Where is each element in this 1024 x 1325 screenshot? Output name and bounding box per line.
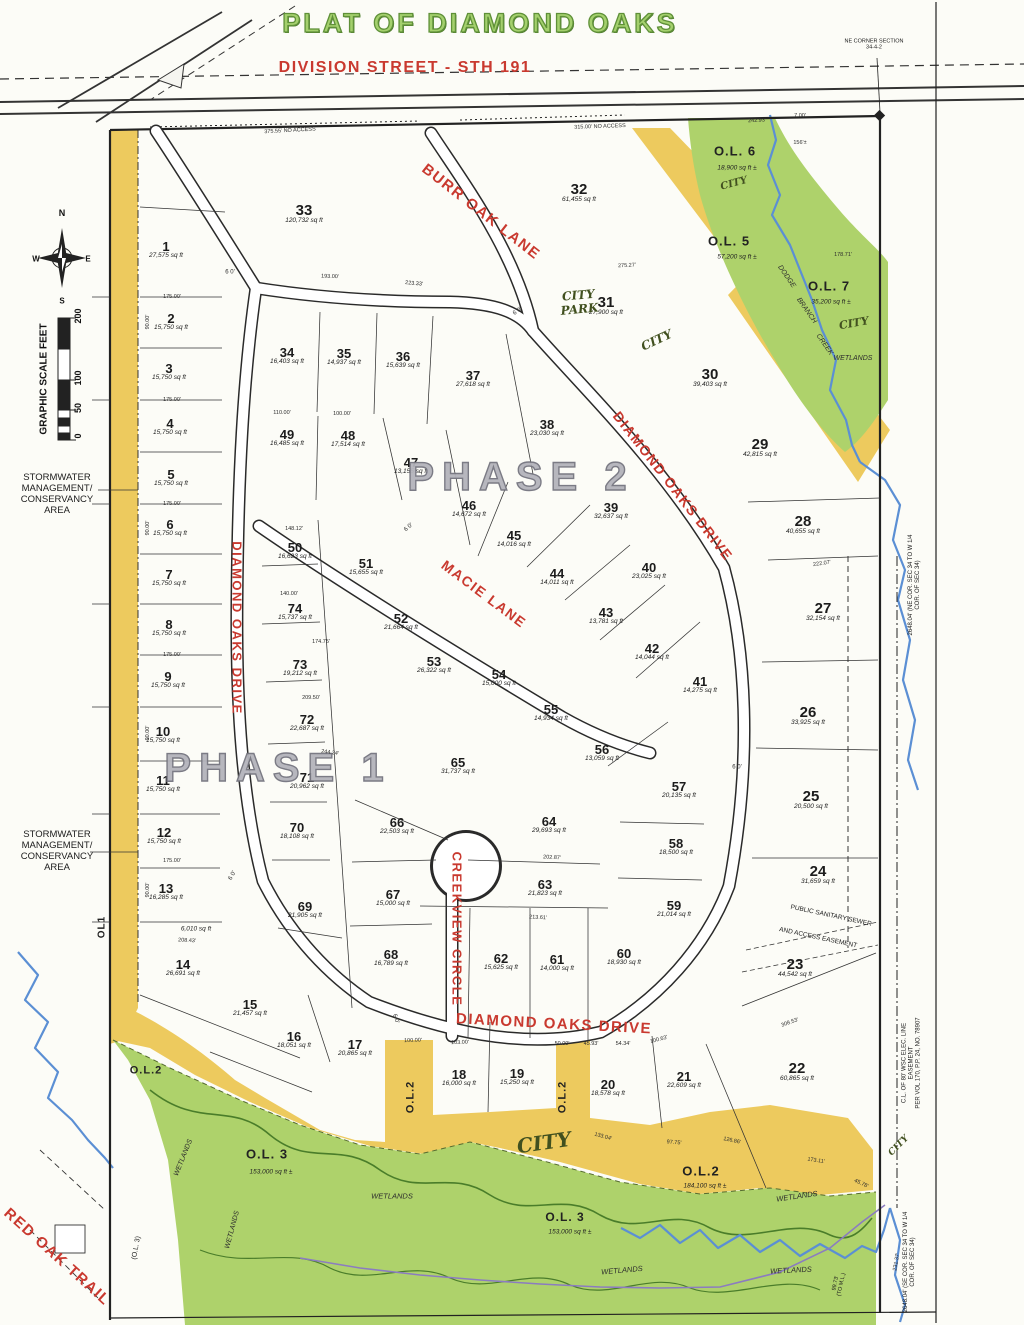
scale-label: 0 — [73, 433, 83, 438]
lot-number: 42 — [635, 642, 669, 655]
lot-area: 23,030 sq ft — [530, 431, 564, 438]
lot-area: 16,789 sq ft — [374, 961, 408, 968]
dimension-label: 6 0' — [225, 270, 235, 277]
lot-label-25: 2520,500 sq ft — [794, 789, 828, 811]
lot-label-32: 3261,455 sq ft — [562, 182, 596, 204]
dimension-label: 175.00' — [163, 397, 181, 403]
lot-area: 15,750 sq ft — [154, 325, 188, 332]
lot-label-60: 6018,930 sq ft — [607, 947, 641, 967]
lot-area: 15,750 sq ft — [154, 481, 188, 488]
lot-label-49: 4916,485 sq ft — [270, 428, 304, 448]
lot-area: 120,732 sq ft — [285, 218, 323, 225]
lot-area: 29,693 sq ft — [532, 828, 566, 835]
outlot-label: O.L.2 — [405, 1081, 418, 1114]
outlot-area-label: 184,100 sq ft ± — [684, 1182, 727, 1189]
lot-area: 14,011 sq ft — [540, 580, 574, 587]
lot-label-53: 5326,322 sq ft — [417, 655, 451, 675]
lot-number: 74 — [278, 602, 312, 615]
lot-area: 15,750 sq ft — [152, 375, 186, 382]
compass-letter: W — [32, 254, 40, 263]
lot-label-3: 315,750 sq ft — [152, 362, 186, 382]
dimension-label: 50.00' — [555, 1041, 570, 1047]
lot-label-36: 3615,639 sq ft — [386, 350, 420, 370]
dimension-label: 100.00' — [404, 1038, 422, 1045]
lot-label-40: 4023,025 sq ft — [632, 561, 666, 581]
lot-number: 68 — [374, 948, 408, 961]
lot-number: 26 — [791, 705, 825, 720]
lot-label-15: 1521,457 sq ft — [233, 998, 267, 1018]
lot-number: 23 — [778, 957, 812, 972]
lot-number: 43 — [589, 606, 623, 619]
wetland-label: WETLANDS — [601, 1265, 643, 1277]
lot-number: 45 — [497, 529, 531, 542]
scale-label: 50 — [73, 403, 83, 413]
lot-number: 21 — [667, 1070, 701, 1083]
lot-number: 25 — [794, 789, 828, 804]
lot-area: 22,503 sq ft — [380, 829, 414, 836]
lot-area: 21,823 sq ft — [528, 891, 562, 898]
dimension-label: 90.00' — [145, 883, 151, 898]
lot-area: 44,542 sq ft — [778, 972, 812, 979]
lot-area: 15,250 sq ft — [500, 1080, 534, 1087]
lot-number: 5 — [154, 468, 188, 481]
outlot-area-label: 153,000 sq ft ± — [549, 1228, 592, 1235]
lot-area: 18,500 sq ft — [659, 850, 693, 857]
dimension-label: 178.71' — [834, 252, 852, 258]
outlot-area-label: 6,010 sq ft — [181, 925, 211, 932]
lot-number: 60 — [607, 947, 641, 960]
handwritten-note: CITY — [515, 1128, 572, 1158]
lot-label-21: 2122,609 sq ft — [667, 1070, 701, 1090]
lot-label-6: 615,750 sq ft — [153, 518, 187, 538]
dimension-label: 90.00' — [145, 315, 151, 330]
lot-area: 21,905 sq ft — [288, 913, 322, 920]
lot-label-33: 33120,732 sq ft — [285, 203, 323, 225]
lot-area: 15,750 sq ft — [152, 631, 186, 638]
lot-label-39: 3932,637 sq ft — [594, 501, 628, 521]
lot-label-12: 1215,750 sq ft — [147, 826, 181, 846]
compass-letter: S — [59, 296, 64, 305]
lot-label-5: 515,750 sq ft — [154, 468, 188, 488]
map-note: 2648.04' (SE COR. SEC 34 TO W 1/4 COR. O… — [903, 1212, 917, 1313]
lot-label-64: 6429,693 sq ft — [532, 815, 566, 835]
dimension-label: 97.75' — [666, 1139, 681, 1147]
lot-area: 14,937 sq ft — [327, 360, 361, 367]
lot-number: 46 — [452, 499, 486, 512]
wetland-label: WETLANDS — [371, 1193, 413, 1202]
lot-label-48: 4817,514 sq ft — [331, 429, 365, 449]
dimension-label: 140.00' — [280, 591, 298, 597]
dimension-label: 375.55' NO ACCESS — [264, 127, 316, 136]
dimension-label: 103.00' — [451, 1040, 469, 1047]
outlot-area-label: 18,900 sq ft ± — [717, 164, 756, 171]
lot-number: 58 — [659, 837, 693, 850]
lot-area: 22,687 sq ft — [290, 726, 324, 733]
lot-number: 6 — [153, 518, 187, 531]
lot-label-20: 2018,578 sq ft — [591, 1078, 625, 1098]
lot-label-2: 215,750 sq ft — [154, 312, 188, 332]
lot-label-35: 3514,937 sq ft — [327, 347, 361, 367]
lot-label-23: 2344,542 sq ft — [778, 957, 812, 979]
lot-area: 21,664 sq ft — [384, 625, 418, 632]
dimension-label: 100.00' — [333, 411, 351, 417]
lot-area: 15,655 sq ft — [349, 570, 383, 577]
lot-area: 17,514 sq ft — [331, 442, 365, 449]
lot-number: 67 — [376, 888, 410, 901]
dimension-label: 45.78' — [853, 1178, 869, 1190]
map-note: PUBLIC SANITARY SEWER — [790, 904, 872, 929]
lot-area: 13,059 sq ft — [585, 756, 619, 763]
lot-number: 18 — [442, 1068, 476, 1081]
wetland-label: WETLANDS — [770, 1266, 812, 1277]
lot-label-22: 2260,865 sq ft — [780, 1061, 814, 1083]
lot-area: 27,575 sq ft — [149, 253, 183, 260]
dimension-label: 202.87' — [543, 854, 561, 861]
lot-label-8: 815,750 sq ft — [152, 618, 186, 638]
map-note: STORMWATER MANAGEMENT/ CONSERVANCY AREA — [21, 473, 94, 517]
lot-number: 65 — [441, 756, 475, 769]
lot-number: 12 — [147, 826, 181, 839]
lot-area: 32,637 sq ft — [594, 514, 628, 521]
dimension-label: 193.00' — [321, 274, 339, 281]
dimension-label: 45.93' — [584, 1041, 599, 1047]
lot-area: 18,930 sq ft — [607, 960, 641, 967]
lot-area: 15,639 sq ft — [386, 363, 420, 370]
lot-area: 61,455 sq ft — [562, 197, 596, 204]
wetland-label: WETLANDS — [173, 1138, 195, 1177]
lot-area: 14,044 sq ft — [635, 655, 669, 662]
lot-label-14: 1426,691 sq ft — [166, 958, 200, 978]
lot-area: 14,016 sq ft — [497, 542, 531, 549]
lot-label-38: 3823,030 sq ft — [530, 418, 564, 438]
dimension-label: 175.00' — [163, 294, 181, 300]
lot-number: 44 — [540, 567, 574, 580]
dimension-label: 6 0' — [732, 765, 742, 772]
lot-label-1: 127,575 sq ft — [149, 240, 183, 260]
lot-area: 14,275 sq ft — [683, 688, 717, 695]
lot-label-4: 415,750 sq ft — [153, 417, 187, 437]
dimension-label: 6 0' — [403, 522, 415, 533]
lot-area: 14,934 sq ft — [534, 716, 568, 723]
lot-area: 15,750 sq ft — [153, 531, 187, 538]
lot-area: 15,737 sq ft — [278, 615, 312, 622]
map-note: NE CORNER SECTION 34-4-2 — [845, 39, 904, 52]
handwritten-note: CITY — [639, 328, 674, 354]
lot-label-41: 4114,275 sq ft — [683, 675, 717, 695]
lot-number: 55 — [534, 703, 568, 716]
lot-number: 9 — [151, 670, 185, 683]
lot-label-61: 6114,000 sq ft — [540, 953, 574, 973]
lot-area: 31,659 sq ft — [801, 879, 835, 886]
lot-label-45: 4514,016 sq ft — [497, 529, 531, 549]
lot-label-26: 2633,925 sq ft — [791, 705, 825, 727]
lot-number: 35 — [327, 347, 361, 360]
lot-area: 18,051 sq ft — [277, 1043, 311, 1050]
lot-label-56: 5613,059 sq ft — [585, 743, 619, 763]
lot-area: 23,025 sq ft — [632, 574, 666, 581]
lot-number: 4 — [153, 417, 187, 430]
map-note: (O.L. 3) — [131, 1236, 143, 1261]
outlot-label: O.L.2 — [557, 1081, 570, 1114]
dimension-label: 308.53' — [781, 1017, 800, 1029]
lot-area: 15,750 sq ft — [152, 581, 186, 588]
lot-number: 41 — [683, 675, 717, 688]
dimension-label: 231.37' — [892, 1253, 901, 1272]
street-label: RED OAK TRAIL — [0, 1205, 113, 1309]
phase-label: PHASE 2 — [407, 454, 634, 500]
lot-label-27: 2732,154 sq ft — [806, 601, 840, 623]
lot-number: 14 — [166, 958, 200, 971]
lot-number: 51 — [349, 557, 383, 570]
lot-area: 15,750 sq ft — [153, 430, 187, 437]
lot-number: 50 — [278, 541, 312, 554]
lot-label-52: 5221,664 sq ft — [384, 612, 418, 632]
dimension-label: 54.34' — [616, 1041, 631, 1047]
street-label: DIVISION STREET - STH 191 — [279, 59, 532, 77]
lot-label-70: 7018,108 sq ft — [280, 821, 314, 841]
dimension-label: 133.04' — [594, 1132, 613, 1143]
lot-label-69: 6921,905 sq ft — [288, 900, 322, 920]
dimension-label: 175.00' — [163, 501, 181, 507]
scale-label: 200 — [73, 308, 83, 323]
lot-number: 2 — [154, 312, 188, 325]
lot-number: 16 — [277, 1030, 311, 1043]
lot-number: 22 — [780, 1061, 814, 1076]
lot-label-72: 7222,687 sq ft — [290, 713, 324, 733]
lot-area: 19,212 sq ft — [283, 671, 317, 678]
dimension-label: 242.93' — [748, 117, 766, 124]
lot-number: 34 — [270, 346, 304, 359]
street-label: DIAMOND OAKS DRIVE — [229, 541, 244, 715]
lot-label-34: 3416,403 sq ft — [270, 346, 304, 366]
outlot-label: O.L. 6 — [714, 145, 756, 160]
lot-label-19: 1915,250 sq ft — [500, 1067, 534, 1087]
lot-number: 64 — [532, 815, 566, 828]
lot-area: 20,135 sq ft — [662, 793, 696, 800]
lot-label-62: 6215,625 sq ft — [484, 952, 518, 972]
dimension-label: 275.27' — [618, 262, 636, 269]
dimension-label: 222.07' — [813, 560, 832, 569]
lot-area: 16,485 sq ft — [270, 441, 304, 448]
wetland-label: WETLANDS — [776, 1190, 818, 1204]
dimension-label: 223.33' — [405, 280, 423, 288]
lot-number: 17 — [338, 1038, 372, 1051]
outlot-label: O.L. 7 — [808, 280, 850, 295]
map-note: 99.73' (TO M.L.) — [830, 1271, 847, 1297]
lot-area: 20,865 sq ft — [338, 1051, 372, 1058]
lot-number: 7 — [152, 568, 186, 581]
lot-label-63: 6321,823 sq ft — [528, 878, 562, 898]
phase-label: PHASE 1 — [164, 745, 391, 791]
lot-number: 32 — [562, 182, 596, 197]
lot-area: 60,865 sq ft — [780, 1076, 814, 1083]
dimension-label: 90.00' — [145, 726, 151, 741]
lot-number: 59 — [657, 899, 691, 912]
lot-label-44: 4414,011 sq ft — [540, 567, 574, 587]
map-note: AND ACCESS EASEMENT — [778, 926, 857, 950]
lot-number: 73 — [283, 658, 317, 671]
dimension-label: 110.00' — [273, 410, 290, 416]
lot-area: 16,285 sq ft — [149, 895, 183, 902]
lot-label-74: 7415,737 sq ft — [278, 602, 312, 622]
map-note: C.L. OF 80' WSC ELEC. LINE EASEMENT PER … — [902, 1007, 923, 1119]
lot-number: 54 — [482, 668, 516, 681]
handwritten-note: CITY — [719, 175, 748, 193]
dimension-label: 174.75' — [312, 639, 330, 645]
lot-label-58: 5818,500 sq ft — [659, 837, 693, 857]
plat-map-page: PLAT OF DIAMOND OAKS 127,575 sq ft215,75… — [0, 0, 1024, 1325]
lot-label-7: 715,750 sq ft — [152, 568, 186, 588]
lot-number: 30 — [693, 367, 727, 382]
lot-label-18: 1816,000 sq ft — [442, 1068, 476, 1088]
lot-number: 37 — [456, 369, 490, 382]
outlot-label: O.L. 5 — [708, 235, 750, 250]
map-note: 2648.04' (NE COR. SEC 34 TO W 1/4 COR. O… — [908, 535, 922, 636]
outlot-label: O.L.2 — [682, 1165, 720, 1180]
outlot-area-label: 153,000 sq ft ± — [250, 1168, 293, 1175]
lot-label-54: 5415,000 sq ft — [482, 668, 516, 688]
dimension-label: 208.43' — [178, 937, 196, 944]
lot-number: 49 — [270, 428, 304, 441]
lot-label-66: 6622,503 sq ft — [380, 816, 414, 836]
lot-area: 21,457 sq ft — [233, 1011, 267, 1018]
lot-area: 15,750 sq ft — [151, 683, 185, 690]
lot-number: 28 — [786, 514, 820, 529]
lot-area: 15,000 sq ft — [482, 681, 516, 688]
lot-area: 15,625 sq ft — [484, 965, 518, 972]
lot-area: 39,403 sq ft — [693, 382, 727, 389]
lot-label-46: 4614,672 sq ft — [452, 499, 486, 519]
scale-label: 100 — [73, 370, 83, 385]
handwritten-note: CITY — [838, 315, 870, 333]
lot-label-59: 5921,014 sq ft — [657, 899, 691, 919]
lot-label-17: 1720,865 sq ft — [338, 1038, 372, 1058]
lot-area: 16,623 sq ft — [278, 554, 312, 561]
outlot-area-label: 35,200 sq ft ± — [811, 298, 850, 305]
lot-area: 14,000 sq ft — [540, 966, 574, 973]
lot-label-37: 3727,618 sq ft — [456, 369, 490, 389]
lot-area: 22,609 sq ft — [667, 1083, 701, 1090]
lot-area: 15,000 sq ft — [376, 901, 410, 908]
lot-number: 13 — [149, 882, 183, 895]
lot-area: 33,925 sq ft — [791, 720, 825, 727]
lot-number: 66 — [380, 816, 414, 829]
lot-number: 40 — [632, 561, 666, 574]
lot-number: 70 — [280, 821, 314, 834]
outlot-area-label: 57,200 sq ft ± — [717, 253, 756, 260]
lot-area: 31,737 sq ft — [441, 769, 475, 776]
lot-label-67: 6715,000 sq ft — [376, 888, 410, 908]
lot-label-65: 6531,737 sq ft — [441, 756, 475, 776]
lot-number: 57 — [662, 780, 696, 793]
lot-area: 18,108 sq ft — [280, 834, 314, 841]
lot-label-50: 5016,623 sq ft — [278, 541, 312, 561]
lot-number: 52 — [384, 612, 418, 625]
lot-area: 15,750 sq ft — [147, 839, 181, 846]
lot-area: 40,655 sq ft — [786, 529, 820, 536]
lot-number: 33 — [285, 203, 323, 218]
lot-label-68: 6816,789 sq ft — [374, 948, 408, 968]
lot-label-16: 1618,051 sq ft — [277, 1030, 311, 1050]
lot-label-51: 5115,655 sq ft — [349, 557, 383, 577]
lot-label-42: 4214,044 sq ft — [635, 642, 669, 662]
lot-number: 24 — [801, 864, 835, 879]
dimension-label: 148.12' — [285, 526, 303, 532]
street-label: BURR OAK LANE — [418, 160, 543, 263]
lot-area: 14,672 sq ft — [452, 512, 486, 519]
dimension-label: 213.61' — [529, 914, 547, 921]
lot-area: 26,691 sq ft — [166, 971, 200, 978]
lot-number: 62 — [484, 952, 518, 965]
lot-area: 20,500 sq ft — [794, 804, 828, 811]
dimension-label: 126.86' — [723, 1136, 742, 1146]
lot-number: 39 — [594, 501, 628, 514]
outlot-label: O.L. 3 — [545, 1211, 584, 1225]
dimension-label: 7.00' — [794, 113, 806, 119]
lot-label-73: 7319,212 sq ft — [283, 658, 317, 678]
dimension-label: 209.50' — [302, 695, 320, 701]
lot-number: 72 — [290, 713, 324, 726]
lot-number: 48 — [331, 429, 365, 442]
lot-label-55: 5514,934 sq ft — [534, 703, 568, 723]
lot-area: 16,403 sq ft — [270, 359, 304, 366]
handwritten-note: CITY — [887, 1134, 912, 1159]
lot-number: 63 — [528, 878, 562, 891]
lot-area: 26,322 sq ft — [417, 668, 451, 675]
lot-number: 20 — [591, 1078, 625, 1091]
labels-layer: 127,575 sq ft215,750 sq ft315,750 sq ft4… — [0, 0, 1024, 1325]
dimension-label: 173.11' — [807, 1157, 825, 1166]
dimension-label: 156'± — [793, 140, 806, 146]
lot-label-24: 2431,659 sq ft — [801, 864, 835, 886]
dimension-label: 90.00' — [145, 521, 151, 536]
lot-number: 27 — [806, 601, 840, 616]
lot-number: 69 — [288, 900, 322, 913]
lot-number: 8 — [152, 618, 186, 631]
compass-letter: N — [59, 208, 66, 218]
scale-label: GRAPHIC SCALE FEET — [38, 323, 50, 434]
outlot-label: OL1 — [96, 916, 108, 938]
wetland-label: WETLANDS — [224, 1210, 242, 1250]
dimension-label: 315.00' NO ACCESS — [574, 123, 626, 131]
street-label: CREEKVIEW CIRCLE — [449, 852, 464, 1007]
dimension-label: 100.63' — [650, 1035, 669, 1046]
lot-area: 27,618 sq ft — [456, 382, 490, 389]
dimension-label: 175.00' — [163, 858, 181, 864]
lot-number: 53 — [417, 655, 451, 668]
lot-label-29: 2942,815 sq ft — [743, 437, 777, 459]
compass-letter: E — [85, 254, 90, 263]
dimension-label: 6 0' — [390, 1013, 400, 1024]
dimension-label: 6 0' — [228, 870, 239, 882]
dimension-label: 6 0' — [512, 306, 524, 317]
lot-number: 61 — [540, 953, 574, 966]
map-note: STORMWATER MANAGEMENT/ CONSERVANCY AREA — [21, 830, 94, 874]
dimension-label: 175.00' — [163, 652, 181, 658]
outlot-label: O.L.2 — [130, 1065, 163, 1078]
street-label: MACIE LANE — [438, 557, 529, 631]
wetland-label: DODGE — [775, 264, 796, 290]
street-label: DIAMOND OAKS DRIVE — [456, 1010, 653, 1037]
lot-number: 29 — [743, 437, 777, 452]
lot-number: 15 — [233, 998, 267, 1011]
lot-area: 18,578 sq ft — [591, 1091, 625, 1098]
lot-area: 32,154 sq ft — [806, 616, 840, 623]
outlot-label: O.L. 3 — [246, 1148, 288, 1163]
wetland-label: CREEK — [814, 333, 834, 357]
lot-number: 36 — [386, 350, 420, 363]
lot-number: 19 — [500, 1067, 534, 1080]
